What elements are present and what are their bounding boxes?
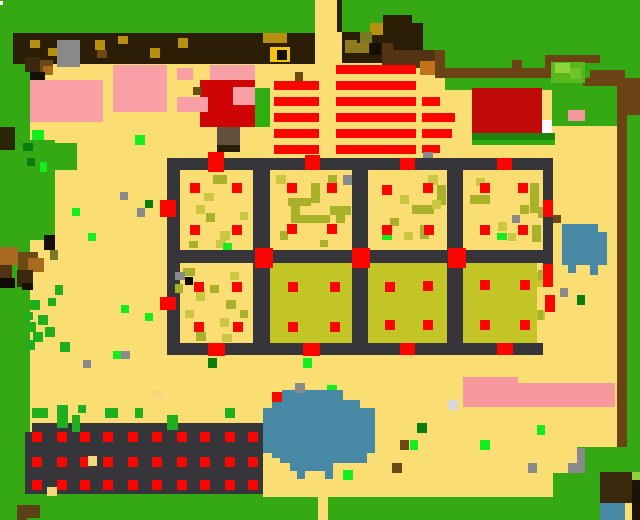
crop-marker xyxy=(382,225,392,235)
wall-marker xyxy=(400,343,415,355)
map-pixel xyxy=(336,215,345,223)
map-pixel xyxy=(220,318,229,327)
field-crop xyxy=(200,432,210,442)
map-pixel xyxy=(432,200,441,209)
wall-marker xyxy=(160,200,176,217)
map-pixel xyxy=(240,212,248,220)
map-pixel xyxy=(30,300,40,310)
field-crop xyxy=(32,432,42,442)
crop-marker xyxy=(424,225,434,235)
wall-marker xyxy=(545,295,555,312)
field-crop xyxy=(177,432,187,442)
map-pixel xyxy=(537,425,545,435)
crop-marker xyxy=(423,320,433,330)
large-pond xyxy=(290,463,333,471)
pink-rug-2 xyxy=(113,65,167,112)
plot-7[interactable] xyxy=(368,263,447,343)
map-pixel xyxy=(295,383,305,393)
pen-fence xyxy=(435,50,445,78)
map-pixel xyxy=(0,278,15,288)
map-pixel xyxy=(220,231,230,240)
map-pixel xyxy=(30,72,45,80)
awning-stripe xyxy=(336,113,416,122)
map-pixel xyxy=(25,57,40,72)
tree-leaves xyxy=(255,88,270,127)
crop-marker xyxy=(190,183,200,193)
map-pixel xyxy=(145,200,153,208)
map-pixel xyxy=(532,225,541,242)
corner-water xyxy=(600,503,625,520)
map-pixel xyxy=(330,206,351,215)
tree-canopy xyxy=(412,23,423,50)
map-pixel xyxy=(303,358,312,368)
map-pixel xyxy=(40,162,47,172)
map-pixel xyxy=(105,408,118,418)
pink-area xyxy=(463,377,518,407)
map-pixel xyxy=(0,247,18,265)
map-pixel xyxy=(412,205,434,214)
large-pond xyxy=(297,471,305,479)
crop-marker xyxy=(330,282,340,292)
crop-marker xyxy=(288,322,298,332)
plot-8[interactable] xyxy=(463,263,537,343)
awning-stripe xyxy=(336,65,416,74)
field-crop xyxy=(103,480,113,490)
map-pixel xyxy=(625,503,632,520)
map-pixel xyxy=(497,233,507,240)
southeast-grass xyxy=(625,447,640,472)
map-pixel xyxy=(343,470,353,480)
map-pixel xyxy=(45,327,55,337)
map-pixel xyxy=(400,195,409,204)
crop-marker xyxy=(232,282,242,292)
map-pixel xyxy=(553,215,561,223)
dirt-path xyxy=(17,505,40,518)
crop-marker xyxy=(385,282,395,292)
farm-wall-east xyxy=(543,217,553,264)
crop-marker xyxy=(233,322,243,332)
map-pixel xyxy=(230,272,239,280)
pink-mat xyxy=(568,110,585,121)
map-pixel xyxy=(276,175,286,184)
red-building[interactable] xyxy=(472,88,542,133)
field-crop xyxy=(152,480,162,490)
south-road[interactable] xyxy=(318,494,328,520)
map-pixel xyxy=(121,305,129,313)
wall-marker xyxy=(543,264,553,287)
field-crop xyxy=(152,457,162,467)
crop-marker xyxy=(480,183,490,193)
map-pixel xyxy=(23,143,33,151)
field-crop xyxy=(128,457,138,467)
field-crop xyxy=(128,480,138,490)
awning-stripe xyxy=(336,145,416,154)
gray-post xyxy=(568,463,577,473)
map-pixel xyxy=(632,472,640,480)
field-gap xyxy=(88,456,97,466)
large-pond xyxy=(272,450,280,458)
building-shadow xyxy=(472,140,555,145)
small-pond xyxy=(590,265,598,275)
crop-marker xyxy=(480,320,490,330)
crop-marker xyxy=(518,183,528,193)
map-pixel xyxy=(120,192,128,200)
map-pixel xyxy=(48,298,56,306)
map-pixel xyxy=(448,400,458,410)
crop-marker xyxy=(194,282,204,292)
awning-stripe xyxy=(274,113,319,122)
map-pixel xyxy=(213,175,227,184)
map-pixel xyxy=(32,130,44,140)
wall-marker xyxy=(543,200,553,217)
east-grass xyxy=(627,115,640,447)
awning-stripe xyxy=(274,129,319,138)
crop-marker xyxy=(232,225,242,235)
white-pixel xyxy=(0,1,3,5)
map-pixel xyxy=(508,233,516,241)
crop-marker xyxy=(520,280,530,290)
awning-stripe xyxy=(336,129,416,138)
map-pixel xyxy=(480,440,490,450)
map-pixel xyxy=(240,310,248,318)
east-fence xyxy=(627,86,640,115)
map-pixel xyxy=(291,206,300,223)
map-pixel xyxy=(72,415,80,432)
map-pixel xyxy=(226,300,236,309)
map-pixel xyxy=(538,310,543,320)
map-pixel xyxy=(72,208,80,216)
map-pixel xyxy=(345,40,357,53)
map-pixel xyxy=(44,235,55,250)
map-pixel xyxy=(196,332,206,341)
map-pixel xyxy=(175,272,185,280)
crop-marker xyxy=(287,224,297,234)
wall-marker xyxy=(497,343,513,355)
field-crop xyxy=(57,480,67,490)
map-pixel xyxy=(530,183,539,213)
map-pixel xyxy=(25,340,35,350)
wall-marker xyxy=(255,248,273,268)
field-gap xyxy=(47,487,57,496)
map-pixel xyxy=(512,215,520,223)
awning-stripe xyxy=(336,81,416,90)
south-sand xyxy=(263,480,553,497)
awning-stripe xyxy=(274,97,319,106)
map-pixel xyxy=(137,208,145,217)
tree-trunk xyxy=(217,127,240,145)
field-crop xyxy=(57,432,67,442)
map-pixel xyxy=(320,240,328,247)
crop-marker xyxy=(194,322,204,332)
small-pond xyxy=(598,232,607,265)
crop-marker xyxy=(190,225,200,235)
wall-marker xyxy=(208,343,225,356)
map-pixel xyxy=(121,351,130,359)
map-pixel xyxy=(498,222,507,231)
large-pond xyxy=(325,471,333,479)
small-pond[interactable] xyxy=(562,224,598,265)
field-crop xyxy=(32,480,42,490)
crop-marker xyxy=(480,225,490,235)
map-pixel xyxy=(196,205,205,214)
crop-marker xyxy=(232,183,242,193)
map-pixel xyxy=(60,342,70,352)
large-pond xyxy=(272,400,360,408)
map-pixel xyxy=(178,38,188,48)
farm-wall-north xyxy=(167,158,553,170)
map-pixel xyxy=(528,463,537,473)
map-pixel xyxy=(357,43,369,53)
map-pixel xyxy=(470,195,490,204)
map-pixel xyxy=(204,193,214,201)
map-pixel xyxy=(83,360,91,368)
map-pixel xyxy=(311,183,320,203)
building-shadow xyxy=(472,133,555,140)
pen-fence xyxy=(583,78,640,86)
map-pixel xyxy=(222,334,232,342)
field-crop xyxy=(248,457,258,467)
field-crop xyxy=(177,457,187,467)
map-pixel xyxy=(382,43,393,67)
map-pixel xyxy=(78,405,86,413)
field-crop xyxy=(57,457,67,467)
map-pixel xyxy=(520,205,529,214)
map-pixel xyxy=(175,284,183,293)
map-pixel xyxy=(88,233,96,241)
map-pixel xyxy=(30,40,40,48)
bushes xyxy=(570,68,581,79)
map-pixel xyxy=(300,215,330,223)
field-crop xyxy=(225,432,235,442)
crop-marker xyxy=(518,225,528,235)
west-grass-bulge xyxy=(0,140,55,240)
tree-blossom xyxy=(177,97,208,112)
tree-blossom xyxy=(210,65,255,80)
field-crop xyxy=(200,480,210,490)
awning-stripe xyxy=(336,97,416,106)
pink-area xyxy=(518,383,615,407)
map-pixel xyxy=(206,213,215,222)
map-pixel xyxy=(150,48,160,58)
field-crop xyxy=(80,480,90,490)
crop-marker xyxy=(287,183,297,193)
large-pond xyxy=(282,390,343,400)
pen-fence xyxy=(445,68,545,78)
creature-eye xyxy=(277,50,287,60)
pink-patch xyxy=(177,68,193,80)
map-pixel xyxy=(560,288,568,297)
map-pixel xyxy=(370,43,381,55)
awning-stripe xyxy=(274,145,319,154)
map-pixel xyxy=(196,292,205,301)
tree-blossom xyxy=(233,87,255,105)
field-crop xyxy=(152,432,162,442)
wall-marker xyxy=(160,297,176,310)
map-pixel xyxy=(145,313,153,321)
map-pixel xyxy=(0,127,15,150)
map-pixel xyxy=(27,158,35,166)
tree-trunk xyxy=(217,145,240,152)
plot-gate[interactable] xyxy=(208,152,224,172)
pink-rug-1 xyxy=(30,80,103,122)
map-pixel xyxy=(223,243,232,250)
map-pixel xyxy=(32,408,48,418)
map-pixel xyxy=(360,32,372,43)
map-pixel xyxy=(272,392,282,402)
farm-wall-east xyxy=(543,160,553,200)
map-pixel xyxy=(22,283,33,290)
map-pixel xyxy=(113,351,121,359)
map-pixel xyxy=(577,295,585,305)
map-pixel xyxy=(392,463,402,473)
road-edge xyxy=(337,0,342,32)
map-pixel xyxy=(95,40,105,50)
wall-marker xyxy=(352,248,370,268)
map-pixel xyxy=(167,415,178,430)
wall-marker xyxy=(448,248,466,268)
crop-marker xyxy=(480,280,490,290)
map-pixel xyxy=(404,232,413,240)
field-crop xyxy=(248,480,258,490)
field-crop xyxy=(80,432,90,442)
awning-stripe xyxy=(422,129,452,138)
map-pixel xyxy=(135,408,143,418)
map-pixel xyxy=(288,198,311,206)
crop-marker xyxy=(423,281,433,291)
awning-stripe xyxy=(422,97,440,106)
map-pixel xyxy=(153,390,163,398)
map-pixel xyxy=(38,315,48,325)
map-pixel xyxy=(118,36,128,44)
map-pixel xyxy=(193,87,202,95)
map-pixel xyxy=(50,250,58,260)
map-pixel xyxy=(410,440,418,450)
map-pixel xyxy=(25,312,33,320)
map-pixel xyxy=(225,408,235,418)
map-pixel xyxy=(417,423,427,433)
map-pixel xyxy=(185,310,194,318)
tilled-field xyxy=(25,432,32,494)
plot-gate[interactable] xyxy=(400,158,415,170)
crop-marker xyxy=(385,320,395,330)
pen-fence xyxy=(590,70,625,78)
field-crop xyxy=(103,432,113,442)
map-pixel xyxy=(55,285,63,295)
map-pixel xyxy=(295,72,303,81)
crop-marker xyxy=(520,320,530,330)
crop-marker xyxy=(423,183,433,193)
large-pond xyxy=(280,453,367,463)
north-grass xyxy=(0,0,315,33)
field-crop xyxy=(225,480,235,490)
map-pixel xyxy=(97,50,107,58)
field-crop xyxy=(200,457,210,467)
field-crop xyxy=(225,457,235,467)
map-pixel xyxy=(57,405,68,428)
map-pixel xyxy=(632,480,640,520)
map-pixel xyxy=(208,358,217,368)
map-pixel xyxy=(343,175,352,185)
plot-gate[interactable] xyxy=(497,158,512,170)
plot-gate[interactable] xyxy=(305,155,320,170)
awning-stripe xyxy=(274,81,319,90)
east-fence xyxy=(617,86,627,447)
map-pixel xyxy=(210,285,219,293)
map-pixel xyxy=(185,277,193,285)
crop-marker xyxy=(327,183,337,193)
west-grass-bulge xyxy=(55,143,77,170)
field-crop xyxy=(103,457,113,467)
stone-block xyxy=(57,40,80,67)
gray-post xyxy=(577,448,585,473)
awning-stripe xyxy=(422,113,455,122)
bushes xyxy=(555,63,570,73)
map-pixel xyxy=(400,440,409,450)
field-crop xyxy=(32,457,42,467)
field-crop xyxy=(128,432,138,442)
field-crop xyxy=(177,480,187,490)
crop-marker xyxy=(330,322,340,332)
crop-marker xyxy=(288,282,298,292)
game-map[interactable] xyxy=(0,0,640,520)
map-pixel xyxy=(263,33,287,43)
crop-marker xyxy=(327,224,337,234)
map-pixel xyxy=(0,265,12,278)
map-pixel xyxy=(135,135,145,145)
map-pixel xyxy=(600,472,632,503)
field-crop xyxy=(248,432,258,442)
crop-marker xyxy=(382,185,392,195)
map-pixel xyxy=(189,241,198,248)
map-pixel xyxy=(28,322,36,332)
large-pond[interactable] xyxy=(263,408,375,453)
pen-fence xyxy=(512,60,522,68)
wall-marker xyxy=(303,343,320,356)
small-pond xyxy=(568,265,576,273)
